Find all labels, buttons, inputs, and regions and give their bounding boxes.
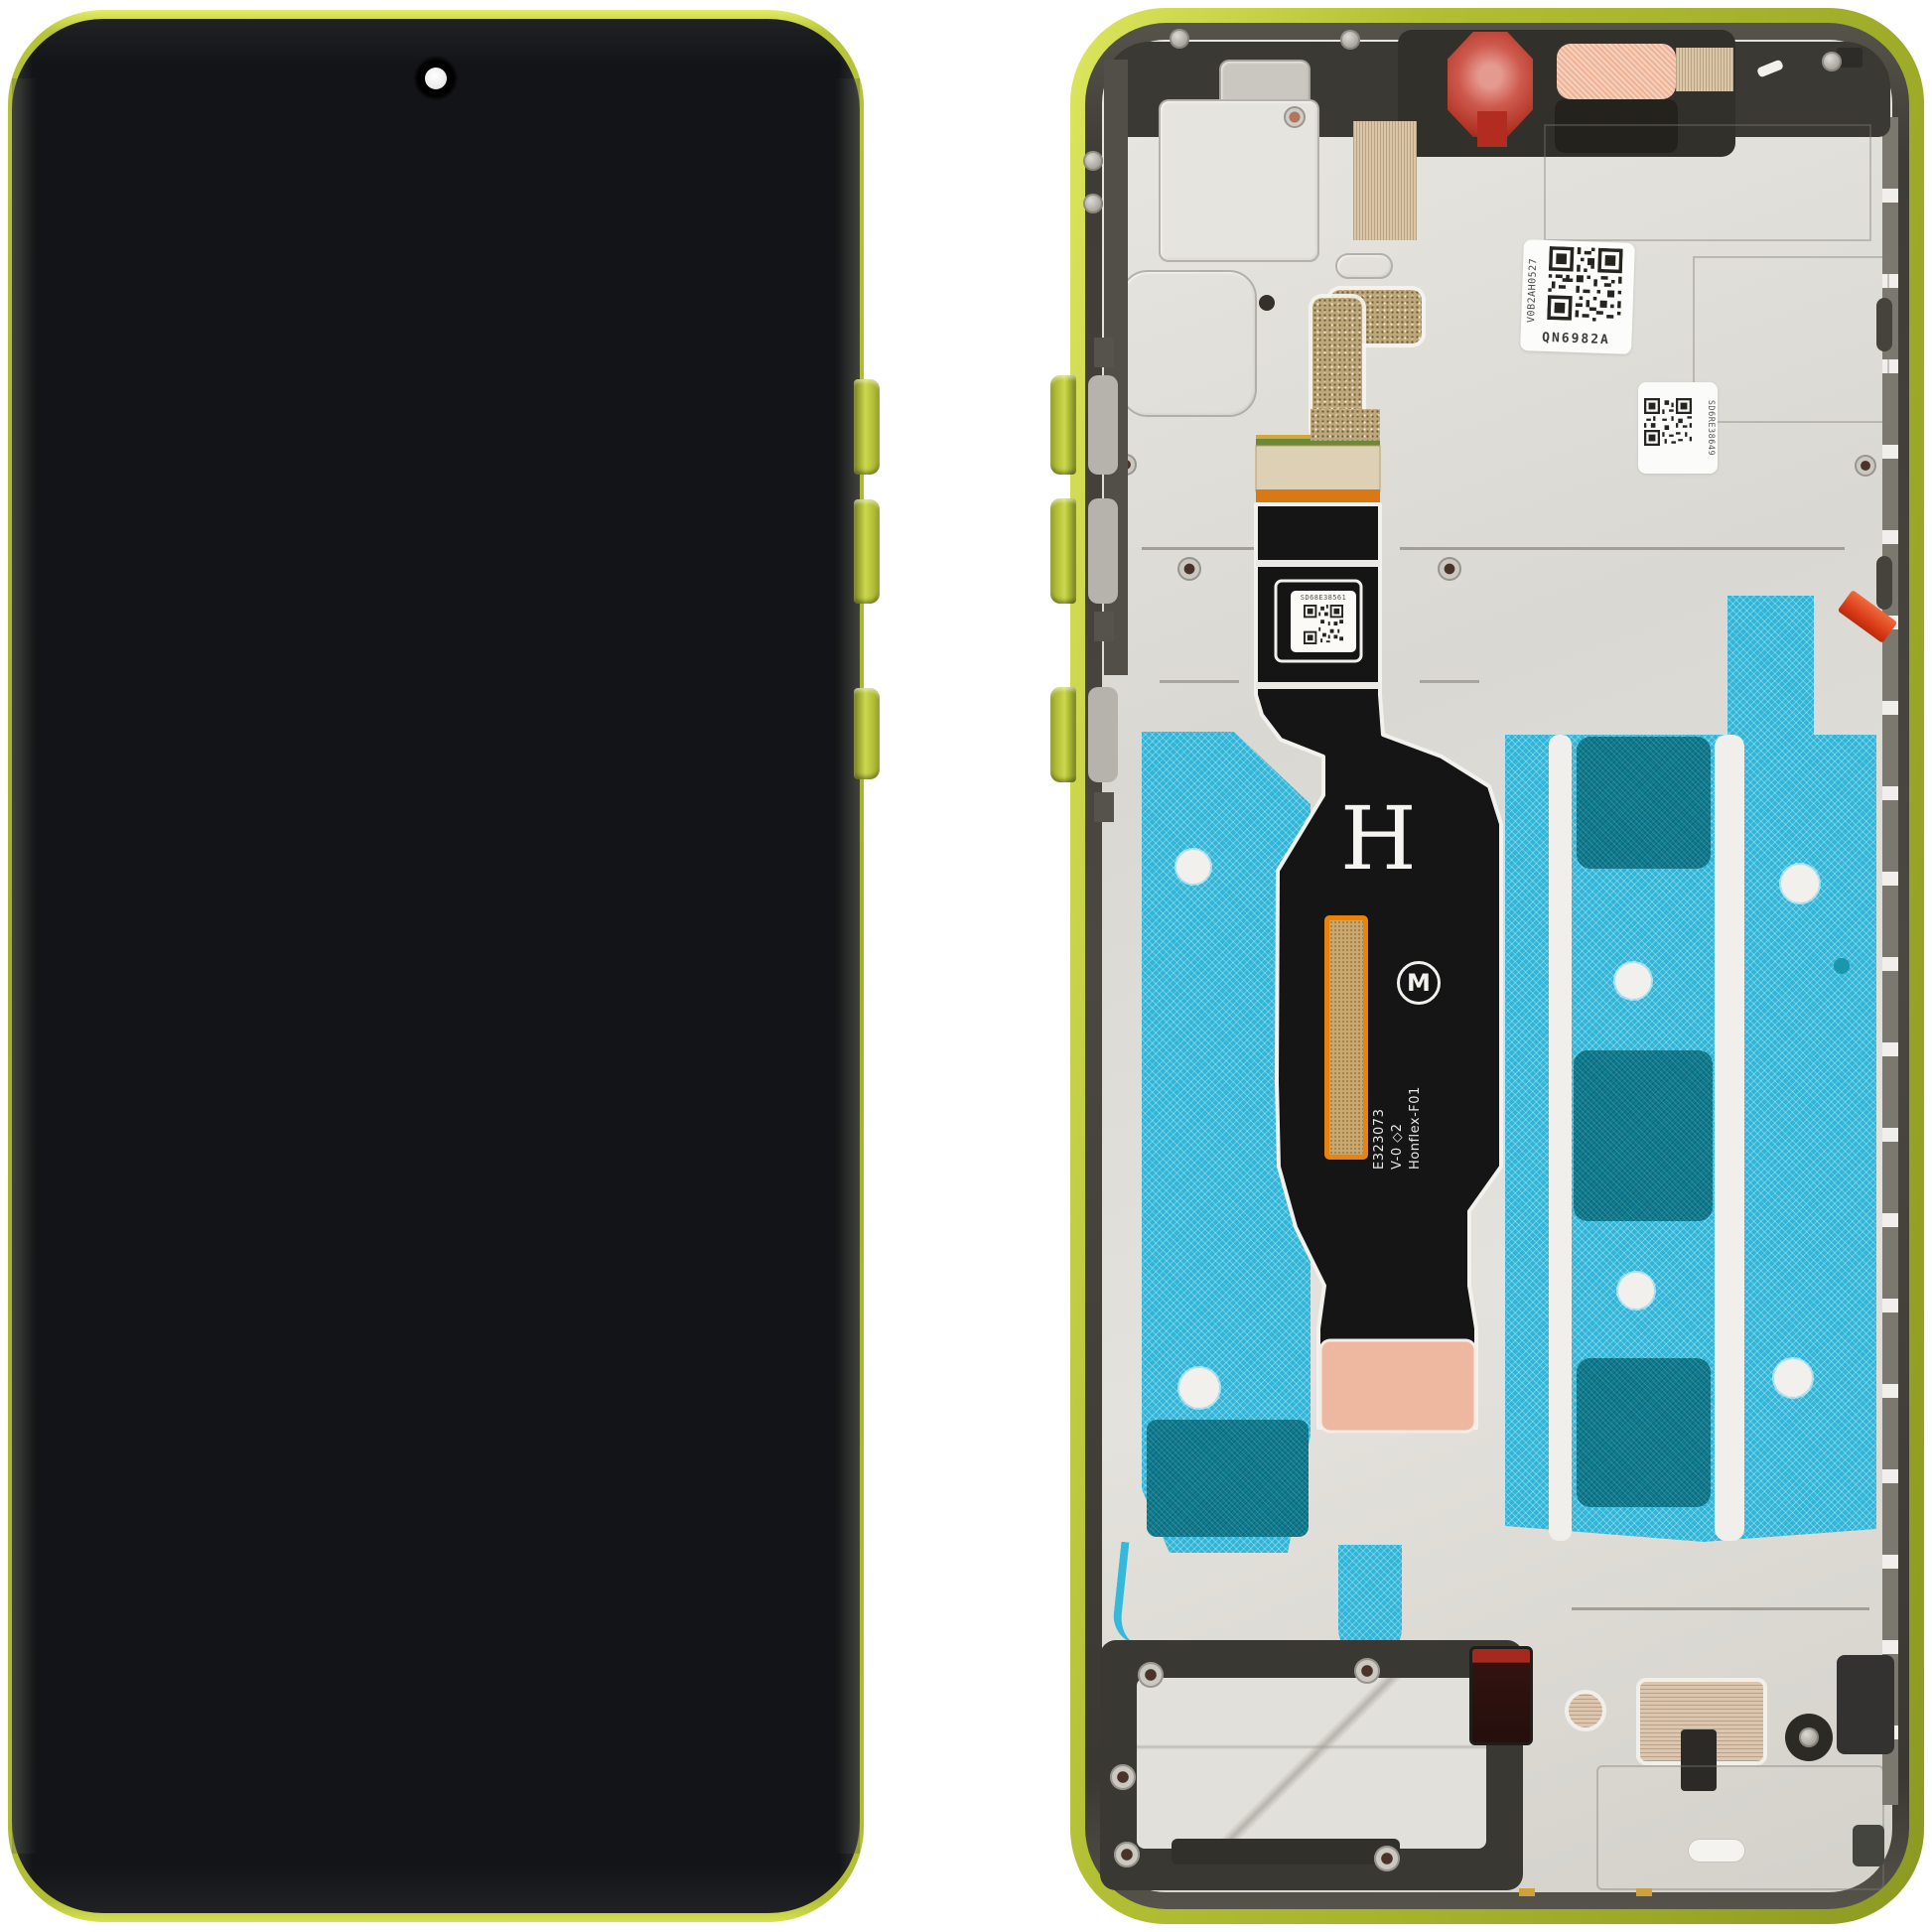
antenna-weave-pad [1353, 121, 1417, 240]
button-recess [1088, 498, 1118, 604]
adhesive-hole [1176, 850, 1210, 884]
adhesive-hole [1615, 963, 1651, 999]
flex-marking-line1: E323073 [1371, 1021, 1389, 1170]
edge-pill-right [1876, 298, 1892, 351]
mic-mesh-circle-icon [1565, 1690, 1606, 1731]
edge-pill-right [1876, 556, 1892, 610]
screw-boss-icon [1374, 1846, 1400, 1871]
bottom-speaker-slot [1172, 1839, 1400, 1864]
plate-seam-line [1400, 547, 1845, 550]
screw-icon [1083, 194, 1103, 213]
adhesive-patch-left-bottom [1147, 1420, 1309, 1537]
qr-label-flex-code: SD68E38561 [1291, 591, 1356, 602]
screw-icon [1340, 30, 1360, 50]
screw-boss-icon [1438, 557, 1461, 581]
bottom-camera-module [1469, 1646, 1533, 1745]
screw-boss-icon [1855, 455, 1876, 477]
adhesive-patch-teal [1577, 1358, 1711, 1507]
adhesive-hole [1618, 1273, 1654, 1309]
screw-icon [1170, 29, 1189, 49]
flex-marking-line3: Honflex-F01 [1407, 1021, 1425, 1170]
screw-icon [1799, 1727, 1819, 1747]
plate-seam-line [1142, 547, 1281, 550]
screw-boss-icon [1110, 1764, 1136, 1790]
flex-gold-pad [1324, 915, 1368, 1160]
edge-notch [1094, 792, 1114, 822]
qr-label-plate: SD6RE38649 [1638, 382, 1718, 474]
qr-code-icon [1304, 605, 1343, 644]
band-weave-pad [1676, 48, 1733, 91]
bottom-inner-plate [1137, 1678, 1486, 1849]
flex-marking-text: E323073 V-0 ◇2 Honflex-F01 [1371, 1021, 1433, 1170]
adhesive-hole [1179, 1368, 1219, 1408]
connector-speckle-nub [1311, 409, 1380, 441]
qr-label-main-code: QN6982A [1520, 330, 1631, 348]
volume-up-button-back [1050, 375, 1076, 475]
plate-outline-rect-a [1544, 124, 1871, 241]
liner-band [1549, 735, 1572, 1541]
edge-notch [1094, 338, 1114, 367]
motorola-logo-glyph: M [1407, 971, 1431, 995]
edge-reflection-left [12, 78, 38, 1854]
power-button [854, 688, 880, 779]
motorola-logo-icon: M [1397, 961, 1441, 1005]
flex-marking-line2: V-0 ◇2 [1389, 1021, 1407, 1170]
phone-front-view [8, 10, 864, 1922]
adhesive-patch-teal [1577, 737, 1711, 869]
phone-inner-view: V0B2AH0527 QN6982A SD6RE38649 [1070, 8, 1924, 1924]
earpiece-mesh-icon [1557, 44, 1676, 99]
button-recess [1088, 375, 1118, 475]
qr-label-flex: SD68E38561 [1291, 591, 1356, 652]
screw-boss-icon [1354, 1658, 1380, 1684]
screw-boss-icon [1138, 1662, 1164, 1688]
plate-seam-line [1572, 1607, 1869, 1610]
qr-label-plate-code: SD6RE38649 [1704, 384, 1716, 472]
bottom-black-bit [1853, 1825, 1884, 1866]
bottom-white-pill [1688, 1839, 1745, 1863]
qr-label-main: V0B2AH0527 QN6982A [1520, 239, 1635, 354]
plate-seam-line [1420, 680, 1479, 683]
front-screen [12, 19, 860, 1913]
plate-emboss-pill [1335, 253, 1393, 279]
screw-icon [1083, 151, 1103, 171]
product-photo: V0B2AH0527 QN6982A SD6RE38649 [0, 0, 1932, 1932]
button-recess [1088, 687, 1118, 782]
qr-label-main-serial: V0B2AH0527 [1526, 244, 1543, 336]
plate-hole-dot [1259, 295, 1275, 311]
adhesive-hole [1781, 865, 1819, 902]
screw-icon [1822, 52, 1842, 71]
plate-seam-line [1160, 680, 1239, 683]
volume-down-button-back [1050, 498, 1076, 604]
gasket-piece-right [1837, 1655, 1894, 1754]
plate-outline-rect-b [1693, 256, 1889, 423]
edge-reflection-right [834, 78, 860, 1854]
edge-notch [1094, 612, 1114, 641]
gold-contact [1636, 1888, 1652, 1896]
gold-contact [1519, 1888, 1535, 1896]
qr-code-icon [1644, 398, 1692, 446]
adhesive-dot [1834, 958, 1850, 974]
qr-code-icon [1547, 246, 1623, 323]
volume-down-button [854, 499, 880, 604]
screw-boss-icon [1114, 1842, 1140, 1867]
bottom-outline-box [1596, 1765, 1884, 1890]
liner-band [1715, 735, 1744, 1541]
punch-hole-camera-lens-icon [425, 68, 447, 89]
screw-boss-icon [1177, 557, 1201, 581]
adhesive-patch-teal [1574, 1050, 1713, 1221]
plate-emboss-rounded [1120, 270, 1257, 417]
power-button-back [1050, 687, 1076, 782]
adhesive-hole [1774, 1359, 1812, 1397]
camera-film-tab [1477, 111, 1507, 147]
screw-icon [1284, 106, 1306, 128]
volume-up-button [854, 379, 880, 475]
flex-h-mark: H [1340, 790, 1404, 888]
